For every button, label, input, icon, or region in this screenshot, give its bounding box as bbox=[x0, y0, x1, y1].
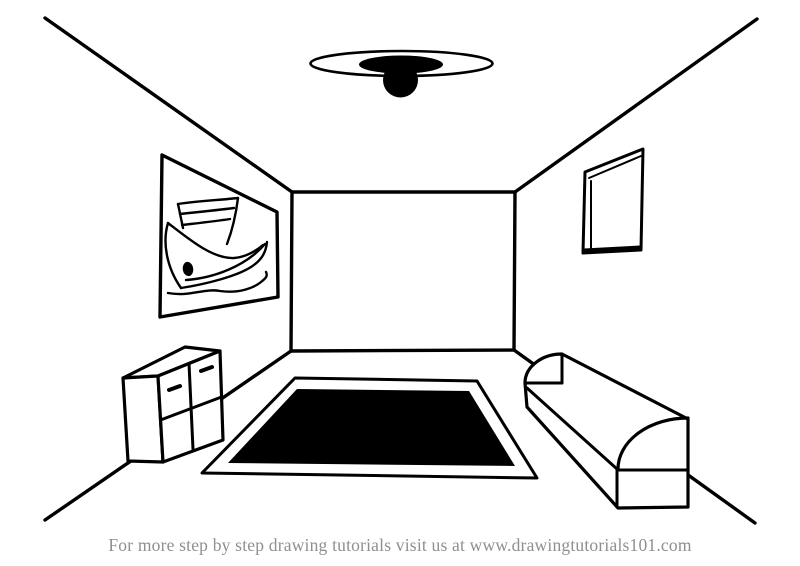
dresser-side bbox=[123, 376, 163, 462]
sofa-body bbox=[525, 354, 688, 508]
rug bbox=[202, 378, 537, 478]
wall-painting bbox=[160, 155, 278, 317]
window bbox=[583, 149, 643, 253]
light-bulb bbox=[383, 63, 418, 98]
sofa bbox=[525, 354, 688, 508]
window-sill bbox=[584, 248, 640, 251]
dresser bbox=[123, 347, 223, 462]
drawing-canvas bbox=[0, 0, 800, 566]
room-drawing bbox=[0, 0, 800, 566]
footer-caption: For more step by step drawing tutorials … bbox=[0, 535, 800, 556]
back-wall bbox=[291, 192, 515, 351]
ceiling-light bbox=[311, 51, 493, 98]
